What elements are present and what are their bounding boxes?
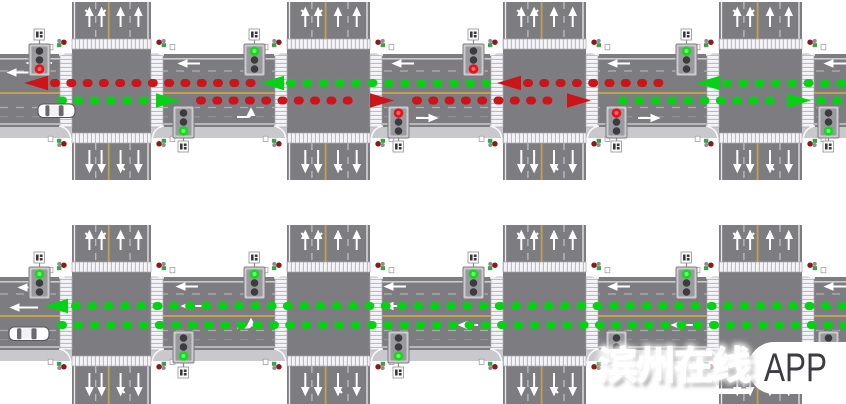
svg-text:APP: APP <box>764 346 827 390</box>
